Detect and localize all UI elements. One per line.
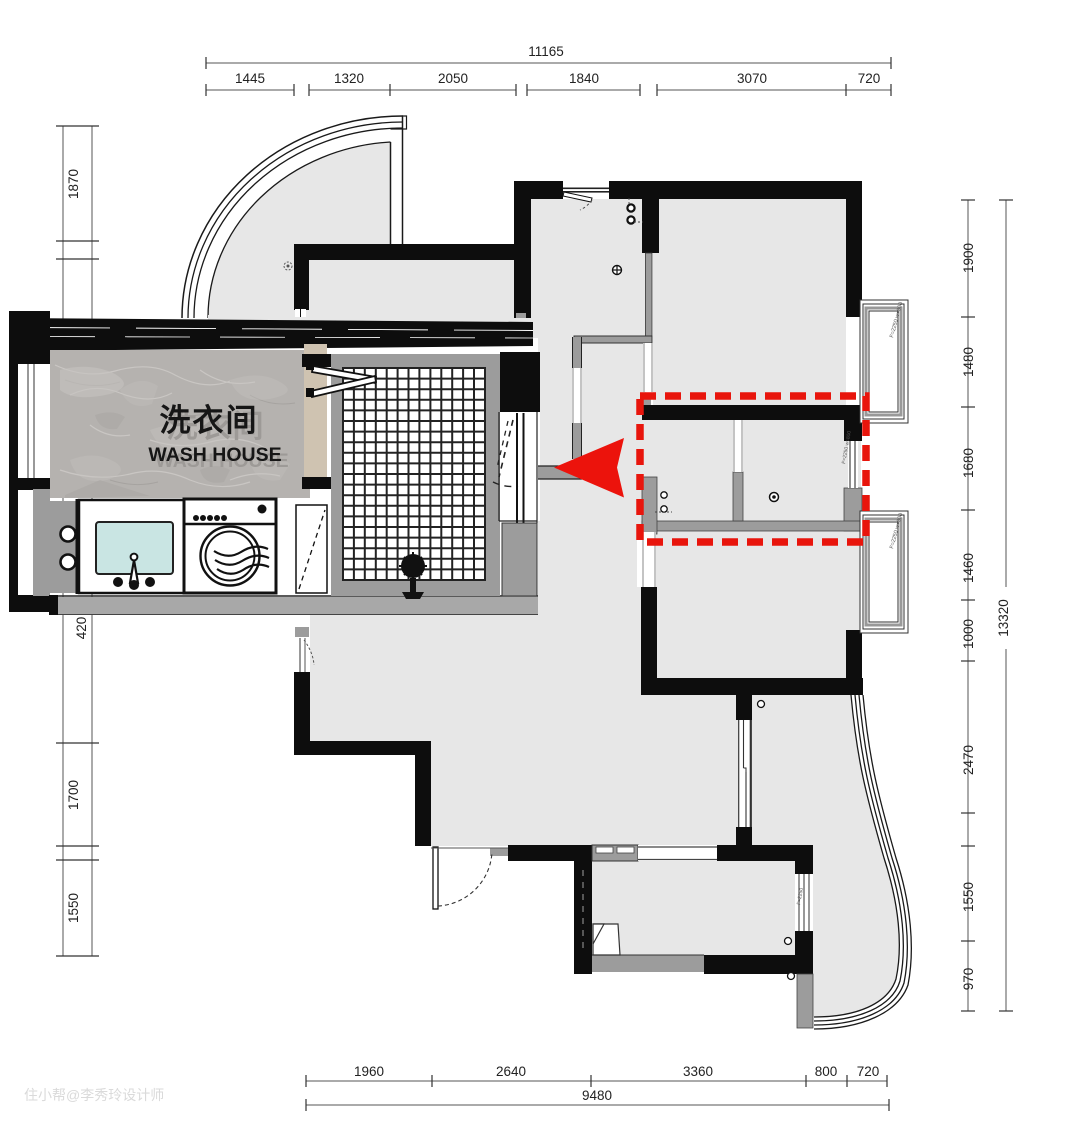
svg-text:1840: 1840 bbox=[569, 71, 599, 86]
svg-text:3070: 3070 bbox=[737, 71, 767, 86]
svg-text:720: 720 bbox=[857, 1064, 880, 1079]
svg-text:2640: 2640 bbox=[496, 1064, 526, 1079]
svg-text:1550: 1550 bbox=[961, 882, 976, 912]
svg-text:970: 970 bbox=[961, 968, 976, 991]
svg-text:1680: 1680 bbox=[961, 448, 976, 478]
svg-text:720: 720 bbox=[858, 71, 881, 86]
svg-text:420: 420 bbox=[74, 617, 89, 640]
svg-text:1445: 1445 bbox=[235, 71, 265, 86]
svg-text:1480: 1480 bbox=[961, 347, 976, 377]
svg-text:1960: 1960 bbox=[354, 1064, 384, 1079]
svg-text:11165: 11165 bbox=[528, 44, 564, 59]
svg-text:2050: 2050 bbox=[438, 71, 468, 86]
svg-text:9480: 9480 bbox=[582, 1088, 612, 1103]
svg-text:1460: 1460 bbox=[961, 553, 976, 583]
svg-text:13320: 13320 bbox=[996, 599, 1011, 637]
svg-text:1550: 1550 bbox=[66, 893, 81, 923]
svg-text:洗衣间: 洗衣间 bbox=[160, 403, 259, 438]
svg-text:3360: 3360 bbox=[683, 1064, 713, 1079]
svg-text:住小帮@李秀玲设计师: 住小帮@李秀玲设计师 bbox=[24, 1087, 164, 1103]
svg-text:1320: 1320 bbox=[334, 71, 364, 86]
svg-text:1900: 1900 bbox=[961, 243, 976, 273]
svg-text:800: 800 bbox=[815, 1064, 838, 1079]
svg-text:1000: 1000 bbox=[961, 619, 976, 649]
svg-text:1870: 1870 bbox=[66, 169, 81, 199]
svg-text:WASH HOUSE: WASH HOUSE bbox=[148, 444, 281, 466]
svg-text:2470: 2470 bbox=[961, 745, 976, 775]
svg-text:1700: 1700 bbox=[66, 780, 81, 810]
